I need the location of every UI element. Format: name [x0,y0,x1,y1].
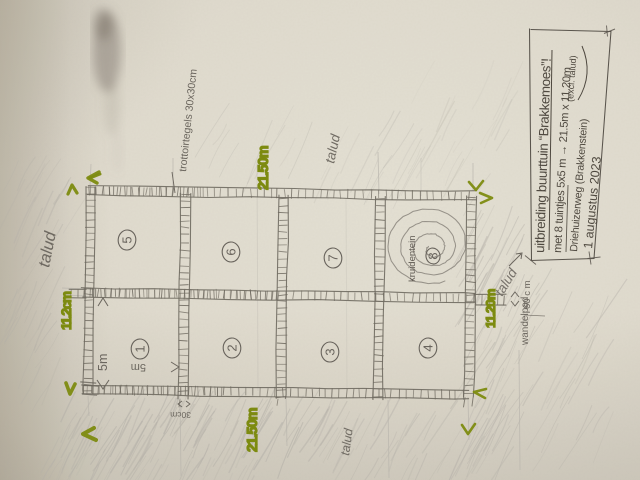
svg-text:5: 5 [120,236,135,243]
svg-text:1: 1 [133,345,148,352]
svg-text:8: 8 [426,252,441,259]
svg-text:21.50m: 21.50m [256,146,272,190]
svg-text:3: 3 [323,348,338,355]
svg-text:6: 6 [224,248,239,255]
svg-text:21.50m: 21.50m [245,408,261,452]
svg-text:kruidentein: kruidentein [407,236,418,282]
svg-text:wandelpad: wandelpad [520,297,531,346]
svg-text:5m: 5m [131,361,146,373]
svg-text:2: 2 [225,344,240,351]
svg-text:11.2cm: 11.2cm [59,291,74,330]
svg-text:7: 7 [326,254,341,261]
svg-text:30cm: 30cm [170,410,191,420]
svg-text:5m: 5m [96,354,110,371]
svg-text:11.20m: 11.20m [483,289,498,328]
svg-text:4: 4 [421,344,436,351]
